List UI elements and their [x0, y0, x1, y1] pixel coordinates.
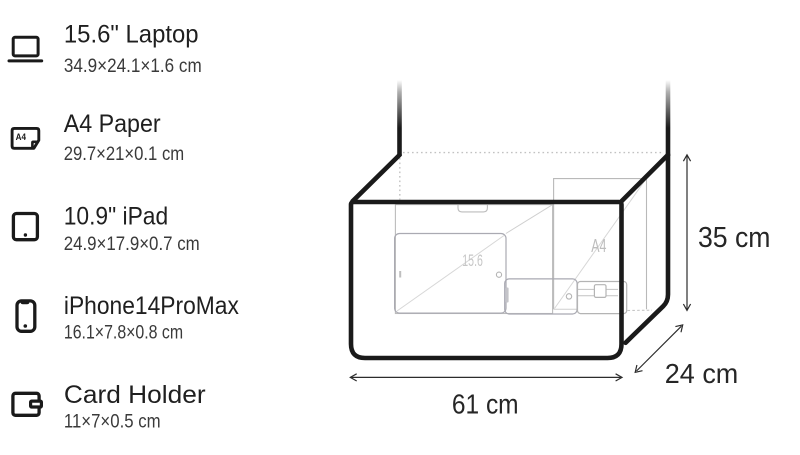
svg-text:29.7×21×0.1 cm: 29.7×21×0.1 cm — [64, 144, 185, 165]
svg-text:10.9" iPad: 10.9" iPad — [64, 203, 169, 231]
svg-text:35 cm: 35 cm — [698, 222, 771, 254]
svg-text:11×7×0.5 cm: 11×7×0.5 cm — [64, 412, 161, 433]
svg-text:A4: A4 — [591, 236, 606, 256]
svg-text:15.6: 15.6 — [462, 251, 483, 270]
svg-text:iPhone14ProMax: iPhone14ProMax — [64, 292, 239, 320]
svg-text:A4: A4 — [16, 132, 26, 142]
svg-text:34.9×24.1×1.6 cm: 34.9×24.1×1.6 cm — [64, 56, 202, 77]
svg-text:61 cm: 61 cm — [452, 389, 519, 420]
svg-text:24.9×17.9×0.7 cm: 24.9×17.9×0.7 cm — [64, 234, 200, 255]
svg-text:A4 Paper: A4 Paper — [64, 110, 161, 138]
svg-text:24 cm: 24 cm — [665, 358, 739, 389]
svg-text:16.1×7.8×0.8 cm: 16.1×7.8×0.8 cm — [64, 323, 183, 344]
svg-text:Card Holder: Card Holder — [64, 381, 206, 409]
svg-text:15.6" Laptop: 15.6" Laptop — [64, 21, 199, 49]
